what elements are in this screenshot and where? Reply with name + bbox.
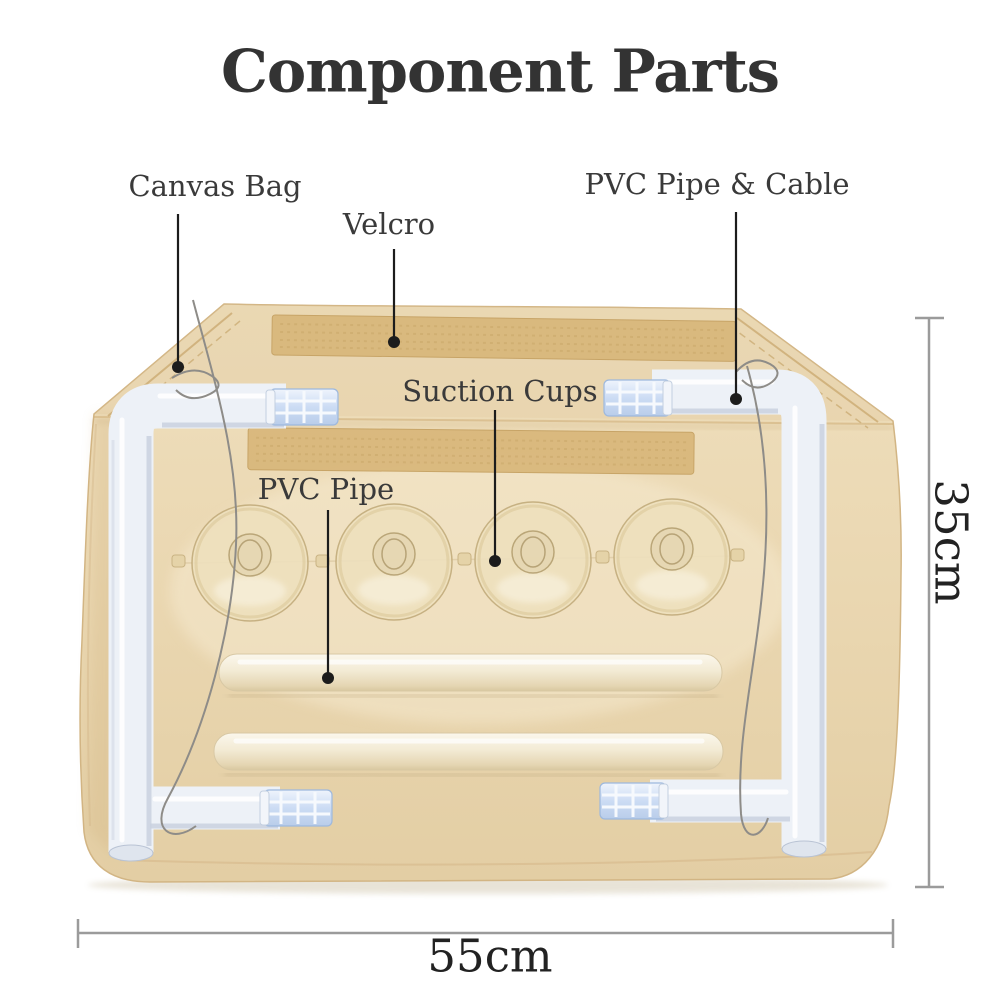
pipe-connector-bottom-left: [260, 790, 332, 826]
velcro-strip-top: [272, 315, 737, 361]
dimension-width-label: 55cm: [427, 930, 552, 983]
velcro-strip-inner: [248, 428, 694, 475]
page-title: Component Parts: [221, 37, 779, 106]
pipe-connector-top-right: [604, 380, 672, 416]
pipe-connector-bottom-right: [600, 783, 668, 819]
pvc-pipe-cream-1: [219, 654, 722, 697]
suction-cup: [336, 504, 452, 620]
pvc-pipe-cream-2: [214, 733, 723, 776]
label-suction-cups: Suction Cups: [402, 374, 597, 408]
component-parts-figure: Component Parts Canvas Bag Velcro PVC Pi…: [0, 0, 1000, 1000]
dimension-height-label: 35cm: [925, 479, 978, 604]
suction-cup: [192, 505, 308, 621]
label-pvc-pipe: PVC Pipe: [258, 472, 394, 506]
label-pvc-pipe-cable: PVC Pipe & Cable: [584, 167, 849, 201]
label-velcro: Velcro: [343, 207, 435, 241]
label-canvas-bag: Canvas Bag: [128, 169, 301, 203]
pipe-connector-top-left: [266, 389, 338, 425]
product-illustration: [0, 0, 1000, 1000]
suction-cup: [614, 499, 730, 615]
